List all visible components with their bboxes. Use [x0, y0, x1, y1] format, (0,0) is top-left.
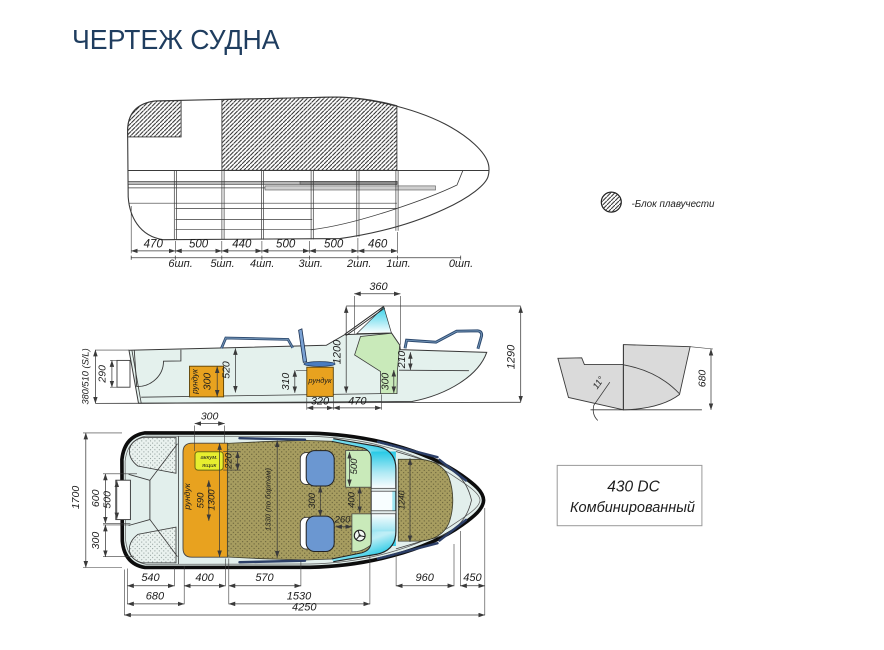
svg-text:590: 590 [196, 492, 207, 509]
svg-text:310: 310 [280, 373, 292, 391]
svg-text:500: 500 [324, 239, 344, 251]
svg-text:260: 260 [334, 515, 352, 526]
svg-text:210: 210 [396, 351, 408, 370]
svg-text:300: 300 [307, 492, 318, 509]
svg-text:460: 460 [368, 239, 388, 251]
svg-text:960: 960 [416, 572, 435, 584]
svg-text:1300: 1300 [207, 489, 218, 511]
svg-text:320: 320 [311, 395, 330, 407]
svg-text:440: 440 [232, 239, 252, 251]
svg-text:680: 680 [146, 590, 165, 602]
svg-text:220: 220 [224, 452, 235, 470]
svg-text:2шп.: 2шп. [346, 258, 371, 270]
svg-text:1330 (по бортам): 1330 (по бортам) [264, 468, 273, 531]
svg-text:аккум.: аккум. [200, 455, 217, 461]
svg-text:1290: 1290 [506, 344, 518, 369]
svg-text:4шп.: 4шп. [250, 258, 274, 270]
svg-text:6шп.: 6шп. [168, 258, 192, 270]
svg-text:4250: 4250 [292, 601, 317, 613]
svg-text:570: 570 [255, 572, 274, 584]
svg-text:470: 470 [348, 395, 367, 407]
svg-text:Комбинированный: Комбинированный [570, 500, 695, 516]
svg-text:300: 300 [201, 410, 219, 422]
svg-text:ящик: ящик [201, 463, 216, 469]
svg-text:300: 300 [90, 532, 102, 550]
svg-text:1шп.: 1шп. [386, 258, 410, 270]
svg-text:300: 300 [380, 373, 392, 391]
svg-text:500: 500 [189, 239, 209, 251]
svg-text:380/510 (S/L): 380/510 (S/L) [81, 348, 91, 404]
svg-text:520: 520 [221, 361, 233, 379]
svg-text:5шп.: 5шп. [210, 258, 234, 270]
svg-text:300: 300 [201, 373, 213, 391]
svg-text:3шп.: 3шп. [299, 258, 323, 270]
svg-text:500: 500 [102, 491, 114, 509]
svg-text:0шп.: 0шп. [449, 258, 473, 270]
svg-text:450: 450 [463, 572, 482, 584]
svg-text:430 DC: 430 DC [607, 479, 660, 496]
svg-text:1240: 1240 [396, 490, 406, 509]
svg-text:400: 400 [347, 491, 358, 508]
svg-text:рундук: рундук [191, 368, 200, 395]
svg-text:рундук: рундук [182, 482, 192, 510]
svg-text:470: 470 [144, 239, 164, 251]
svg-text:1700: 1700 [70, 486, 82, 510]
svg-text:500: 500 [276, 239, 296, 251]
svg-text:400: 400 [195, 572, 214, 584]
svg-text:290: 290 [97, 365, 109, 384]
svg-text:680: 680 [696, 370, 708, 388]
svg-text:-Блок плавучести: -Блок плавучести [632, 199, 715, 210]
svg-text:600: 600 [90, 489, 102, 507]
svg-text:рундук: рундук [307, 376, 332, 385]
svg-text:360: 360 [369, 281, 388, 293]
svg-text:500: 500 [349, 458, 360, 475]
svg-text:1200: 1200 [332, 339, 344, 364]
svg-text:540: 540 [141, 572, 160, 584]
